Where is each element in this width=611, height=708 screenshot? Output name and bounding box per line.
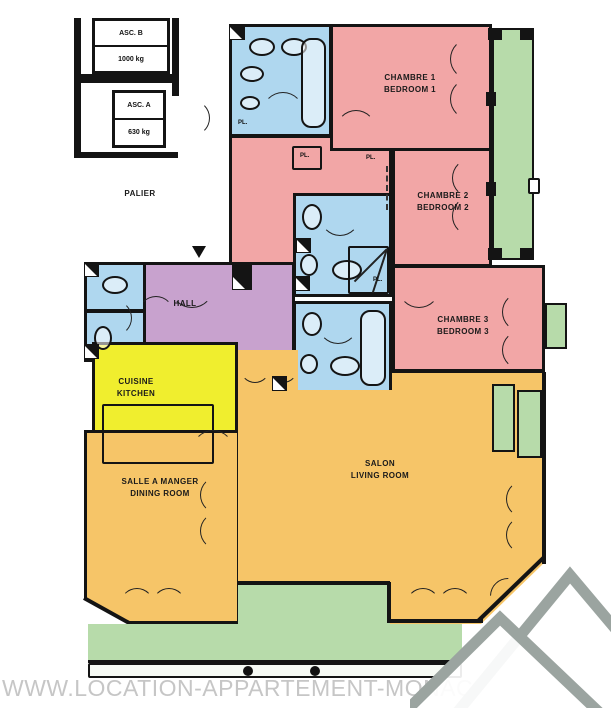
balcony-post [488, 248, 502, 260]
wall-hatch [84, 262, 99, 277]
sink-icon [330, 356, 360, 376]
hall-double-door-arc [240, 353, 270, 383]
elevator-wall [172, 18, 179, 96]
wall-hatch [296, 238, 311, 253]
elevator-b-capacity: 1000 kg [95, 47, 167, 71]
door-arc [398, 266, 440, 308]
door-arc [262, 92, 304, 134]
landing-door-arc [174, 100, 210, 136]
elevator-wall [74, 74, 179, 83]
wall-hatch [232, 264, 252, 290]
elevator-wall [74, 152, 178, 158]
window-box [492, 384, 515, 452]
dining-room-label: SALLE A MANGER DINING ROOM [105, 476, 215, 501]
sink-icon [249, 38, 275, 56]
elevator-b: ASC. B 1000 kg [92, 18, 170, 74]
bedroom-1-label: CHAMBRE 1 BEDROOM 1 [350, 72, 470, 97]
toilet-icon [240, 66, 264, 82]
bay-door-arc [506, 480, 544, 518]
elevator-b-name: ASC. B [95, 21, 167, 47]
bidet-icon [240, 96, 260, 110]
toilet-icon [302, 204, 322, 230]
wall-hatch [295, 276, 310, 291]
kitchen-label: CUISINE KITCHEN [98, 376, 174, 401]
window-box [545, 303, 567, 349]
bathtub-icon [301, 38, 326, 128]
door-arc [320, 196, 360, 236]
elevator-a-capacity: 630 kg [115, 120, 163, 145]
bidet-icon [300, 254, 318, 276]
closet-label: PL. [238, 120, 247, 126]
balcony-window [528, 178, 540, 194]
balcony-post [520, 28, 534, 40]
bay-door-arc [506, 516, 544, 554]
sink-icon [102, 276, 128, 294]
door-arc [192, 430, 234, 472]
balcony-post [520, 248, 534, 260]
balcony-post [488, 28, 502, 40]
roof-logo-icon [410, 560, 611, 708]
living-room-label: SALON LIVING ROOM [330, 458, 430, 483]
closet-label: PL. [300, 153, 309, 159]
door-arc [318, 304, 358, 344]
bathtub-icon [360, 310, 386, 386]
wall-hatch [84, 344, 99, 359]
double-door-arc [200, 512, 238, 550]
bidet-icon [300, 354, 318, 374]
window-box [517, 390, 542, 458]
wall-hatch [229, 24, 245, 40]
terrace-recess-wall [238, 581, 390, 585]
balcony-post [486, 92, 496, 106]
elevator-a-name: ASC. A [115, 93, 163, 120]
elevator-a: ASC. A 630 kg [112, 90, 166, 148]
terrace-door-arc [120, 588, 154, 622]
entrance-arrow-icon [192, 246, 206, 258]
terrace-recess-wall [387, 582, 391, 623]
hall-label: HALL [150, 298, 220, 310]
wall-hatch [272, 376, 287, 391]
closet-label: PL. [366, 155, 375, 161]
floor-plan: ASC. B 1000 kg ASC. A 630 kg PALIER CHAM… [0, 0, 611, 708]
closet-label: PL. [373, 277, 382, 283]
landing-label: PALIER [100, 188, 180, 200]
bedroom-2-label: CHAMBRE 2 BEDROOM 2 [398, 190, 488, 215]
bedroom-3-label: CHAMBRE 3 BEDROOM 3 [408, 314, 518, 339]
closet-dashed-door [386, 166, 388, 210]
terrace-door-arc [152, 588, 186, 622]
door-arc [96, 300, 132, 336]
balcony [492, 28, 534, 260]
door-arc [336, 110, 376, 150]
elevator-wall [74, 18, 81, 158]
